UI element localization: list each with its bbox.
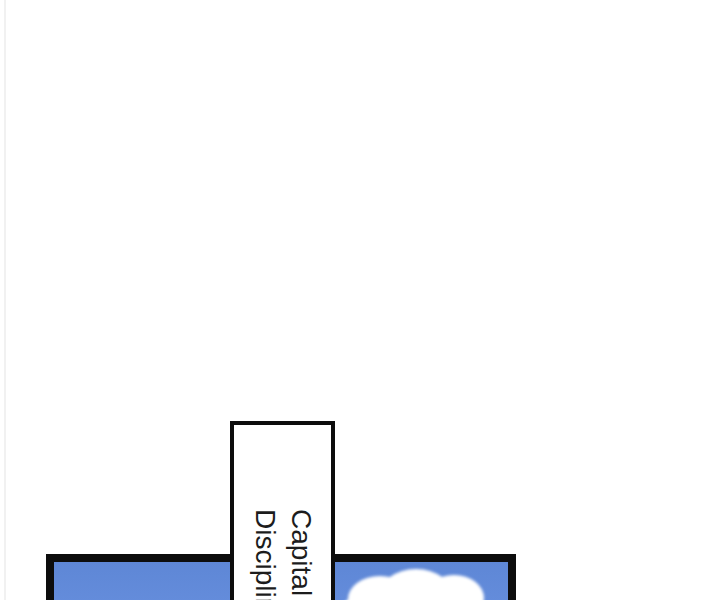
label-line-2: Discipline xyxy=(247,509,283,600)
label-line-1: Capital xyxy=(283,509,319,600)
page-canvas: Capital Discipline xyxy=(0,0,720,600)
page-edge-line xyxy=(4,0,6,600)
capital-discipline-label: Capital Discipline xyxy=(247,509,319,600)
capital-discipline-box: Capital Discipline xyxy=(230,421,335,600)
